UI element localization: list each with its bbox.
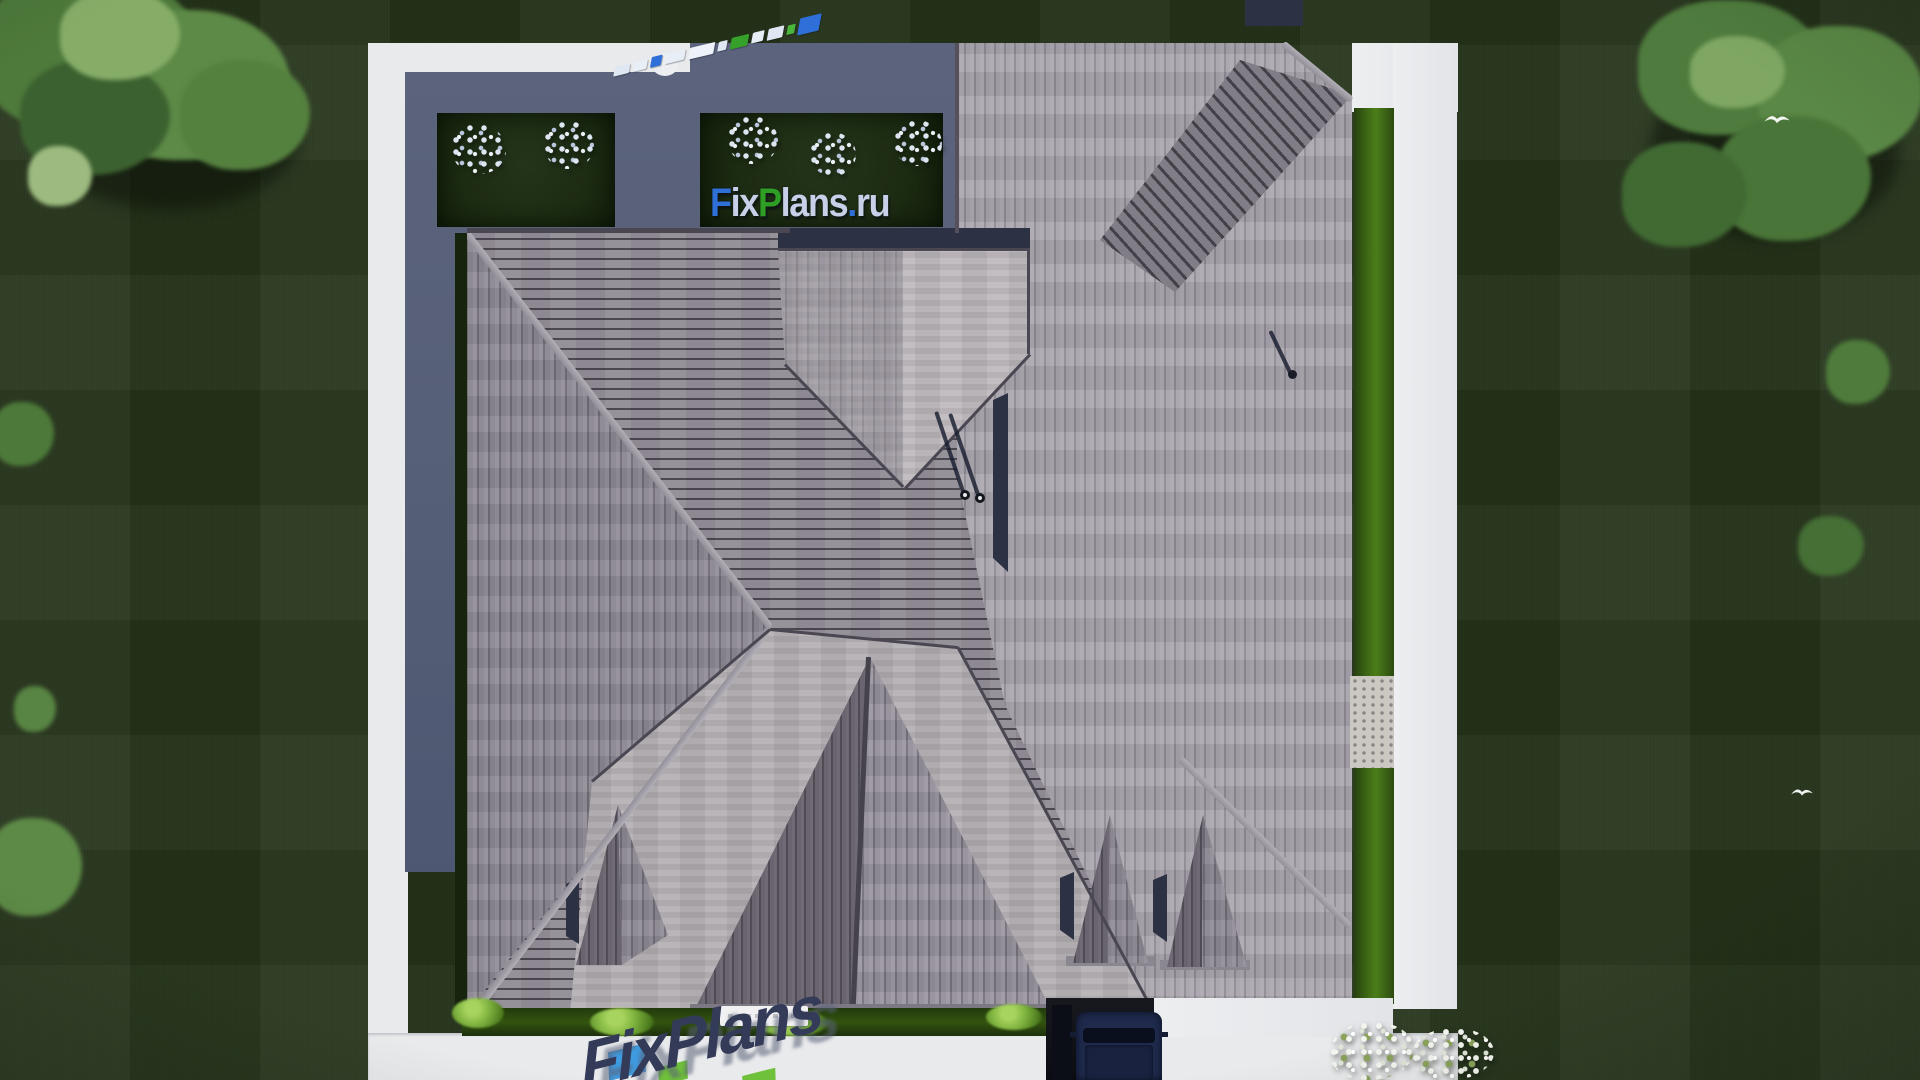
- walkway-right-band: [1393, 43, 1457, 1009]
- flower-bush: [544, 121, 594, 169]
- green-bush: [452, 998, 504, 1028]
- watermark-block: [786, 23, 796, 35]
- car-mirror: [1161, 1032, 1168, 1037]
- bird-icon: [1763, 110, 1791, 128]
- fixplans-logo-segment: lans: [781, 181, 848, 225]
- gable-edge-line: [1027, 250, 1030, 354]
- car-mirror: [1070, 1032, 1077, 1037]
- watermark-block: [688, 41, 715, 59]
- fixplans-logo-segment: ru: [856, 181, 889, 225]
- watermark-block: [650, 55, 663, 68]
- valley-line: [955, 43, 959, 233]
- gable-eave-line: [778, 248, 1030, 251]
- roof-pipe: [975, 493, 985, 503]
- car-shadow: [1052, 1005, 1072, 1080]
- flower-bush: [452, 124, 506, 174]
- watermark-block: [751, 30, 765, 44]
- flower-bush: [894, 120, 942, 166]
- aerial-render-stage: FixPlans.ru: [0, 0, 1920, 1080]
- fixplans-logo-segment: F: [710, 181, 731, 225]
- gravel-pad: [1350, 676, 1394, 768]
- roof-vent: [1288, 370, 1297, 379]
- car-roof: [1085, 1045, 1153, 1080]
- watermark-block: [633, 59, 648, 72]
- roof-pipe: [960, 490, 970, 500]
- green-bush: [986, 1004, 1042, 1030]
- skylight-panel: [1245, 0, 1303, 26]
- hedge-right-strip: [1354, 108, 1394, 1004]
- watermark-block: [717, 39, 728, 51]
- top-eave-line: [467, 228, 790, 233]
- flower-bush: [810, 132, 856, 176]
- watermark-block: [797, 13, 822, 35]
- watermark-block: [767, 25, 785, 41]
- flower-bush: [728, 116, 778, 164]
- watermark-block: [613, 63, 630, 76]
- fixplans-logo-segment: .: [847, 181, 856, 225]
- fixplans-logo: FixPlans.ru: [710, 181, 889, 226]
- car: [1076, 1012, 1162, 1080]
- car-windshield: [1083, 1028, 1155, 1043]
- watermark-block: [665, 49, 686, 64]
- walkway-bottom-band: [368, 1033, 1458, 1080]
- bird-icon: [1790, 784, 1814, 800]
- fixplans-logo-segment: ix: [731, 181, 758, 225]
- fixplans-logo-segment: P: [758, 181, 781, 225]
- walkway-left-band: [368, 50, 408, 1080]
- hedge-left-strip: [455, 233, 467, 1010]
- watermark-block: [730, 33, 750, 49]
